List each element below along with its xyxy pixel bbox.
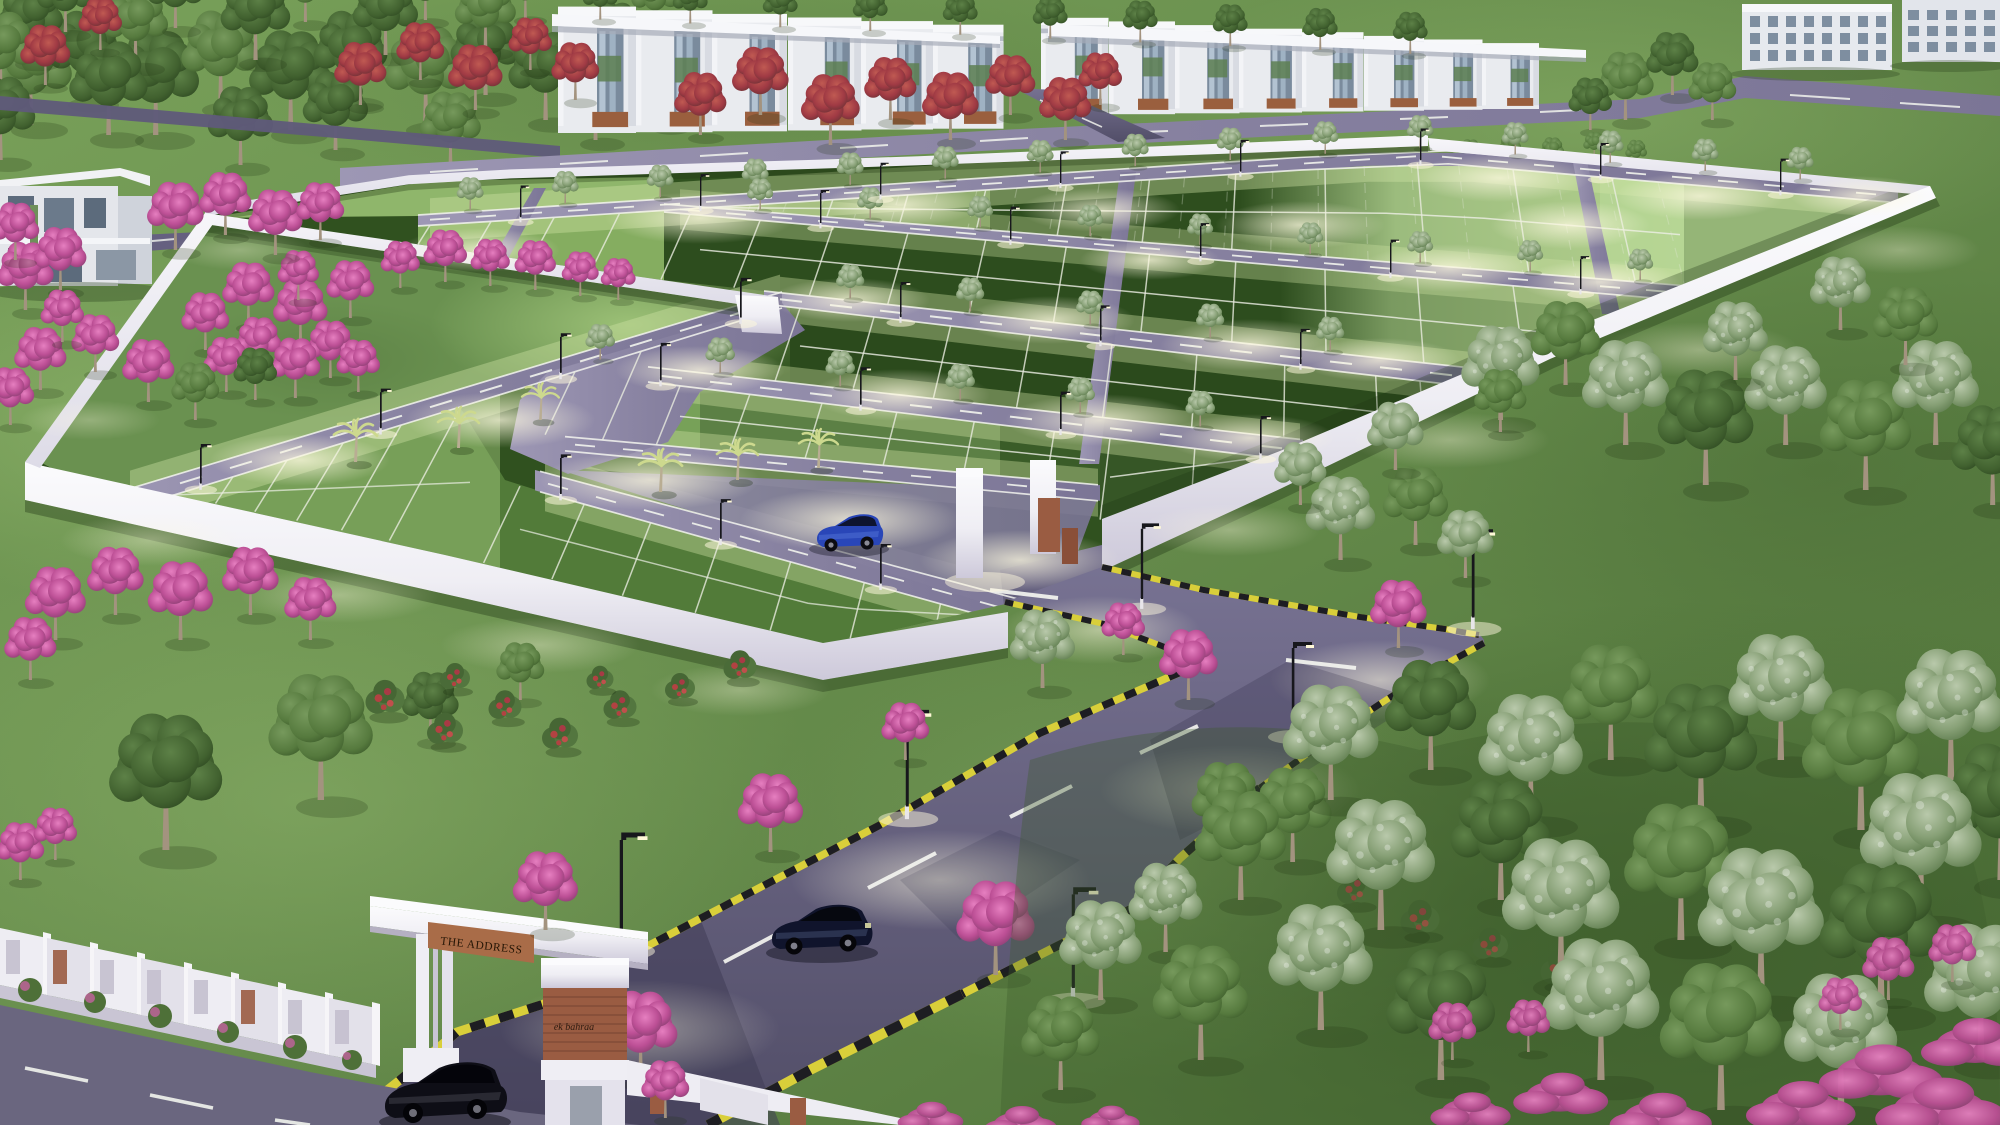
svg-text:ek bahraa: ek bahraa — [554, 1022, 594, 1033]
